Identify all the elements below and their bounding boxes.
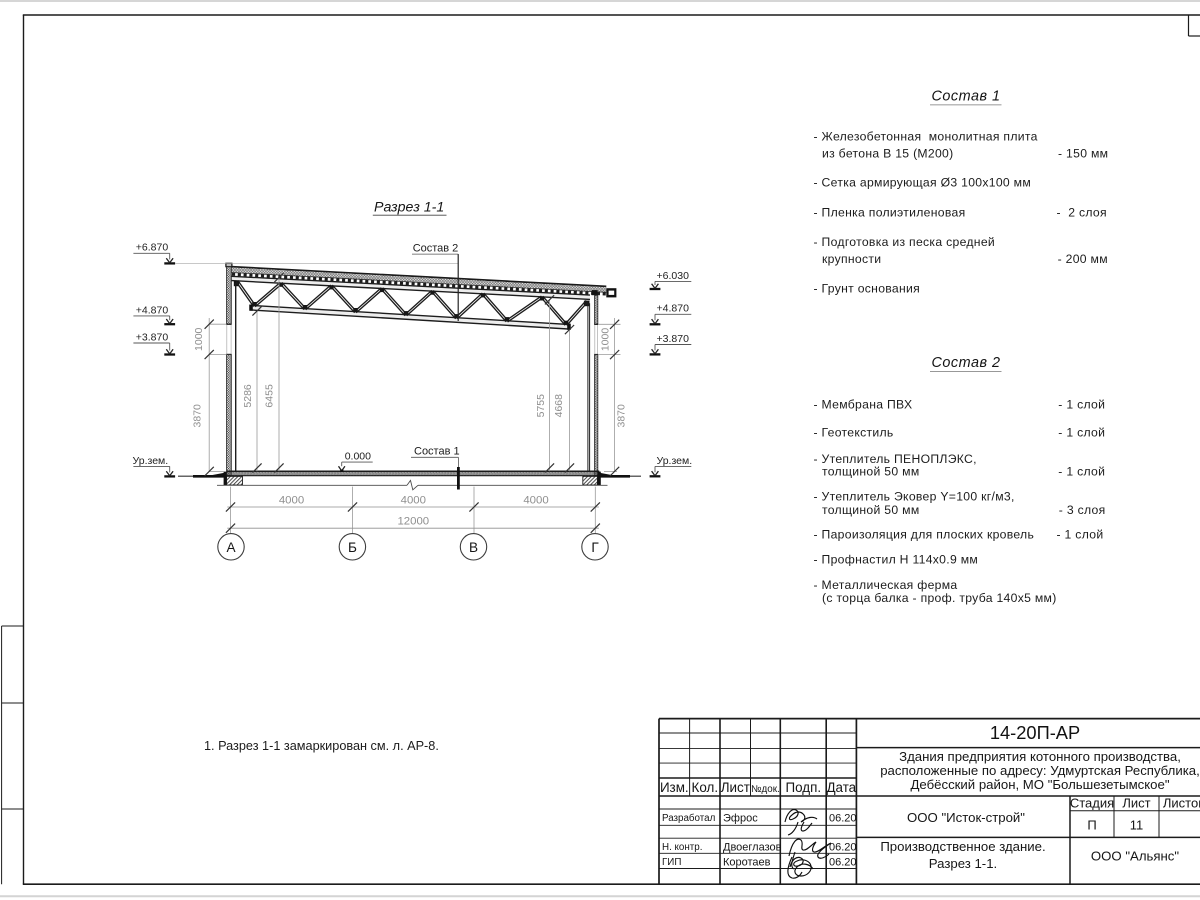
svg-text:5286: 5286 xyxy=(242,384,254,408)
svg-text:расположенные по адресу: Удмур: расположенные по адресу: Удмуртская Респ… xyxy=(880,763,1200,778)
svg-text:- 150 мм: - 150 мм xyxy=(1058,147,1108,161)
svg-text:- Геотекстиль: - Геотекстиль xyxy=(814,426,894,440)
svg-text:Состав 1: Состав 1 xyxy=(414,446,460,458)
svg-text:ООО "Альянс": ООО "Альянс" xyxy=(1091,849,1179,864)
svg-text:4000: 4000 xyxy=(523,494,548,506)
svg-text:толщиной 50 мм: толщиной 50 мм xyxy=(822,503,920,517)
svg-text:+6.030: +6.030 xyxy=(657,270,690,282)
svg-text:Н. контр.: Н. контр. xyxy=(662,842,702,853)
svg-text:4668: 4668 xyxy=(553,394,565,418)
svg-text:- Мембрана ПВХ: - Мембрана ПВХ xyxy=(814,398,913,412)
svg-text:06.20: 06.20 xyxy=(829,813,857,825)
svg-text:- Грунт основания: - Грунт основания xyxy=(814,281,921,295)
svg-text:- Утеплитель Эковер Y=100 кг/м: - Утеплитель Эковер Y=100 кг/м3, xyxy=(814,490,1015,504)
svg-text:ГИП: ГИП xyxy=(662,857,681,868)
svg-text:3870: 3870 xyxy=(192,404,204,428)
svg-text:+3.870: +3.870 xyxy=(136,331,169,343)
svg-text:5755: 5755 xyxy=(535,394,547,418)
svg-text:Коротаев: Коротаев xyxy=(723,857,771,869)
svg-text:Эфрос: Эфрос xyxy=(723,813,758,825)
svg-text:4000: 4000 xyxy=(279,494,304,506)
svg-text:14-20П-АР: 14-20П-АР xyxy=(990,722,1080,743)
svg-text:Изм.: Изм. xyxy=(660,780,689,795)
svg-text:1. Разрез 1-1 замаркирован см.: 1. Разрез 1-1 замаркирован см. л. АР-8. xyxy=(204,739,439,753)
svg-text:4000: 4000 xyxy=(401,494,426,506)
svg-text:Подп.: Подп. xyxy=(786,780,822,795)
svg-text:- 200 мм: - 200 мм xyxy=(1058,252,1108,266)
svg-text:- Сетка армирующая Ø3 100х100: - Сетка армирующая Ø3 100х100 мм xyxy=(814,176,1032,190)
svg-text:11: 11 xyxy=(1130,818,1144,833)
svg-text:+4.870: +4.870 xyxy=(657,303,690,315)
svg-text:1000: 1000 xyxy=(600,328,612,352)
svg-text:+3.870: +3.870 xyxy=(657,333,690,345)
svg-text:Листов: Листов xyxy=(1163,795,1200,810)
svg-text:Дебёсский район, МО "Большезет: Дебёсский район, МО "Большезетымское" xyxy=(910,777,1169,792)
svg-text:А: А xyxy=(226,540,236,555)
svg-text:6455: 6455 xyxy=(263,384,275,408)
svg-text:3870: 3870 xyxy=(616,404,628,428)
svg-text:(с торца балка - проф. труба 1: (с торца балка - проф. труба 140х5 мм) xyxy=(822,591,1057,605)
svg-text:Кол.: Кол. xyxy=(692,780,719,795)
svg-text:крупности: крупности xyxy=(822,252,881,266)
svg-text:Двоеглазов: Двоеглазов xyxy=(723,841,782,853)
svg-text:Разрез 1-1.: Разрез 1-1. xyxy=(929,856,997,871)
svg-text:Лист: Лист xyxy=(1122,795,1150,810)
svg-text:12000: 12000 xyxy=(397,516,429,528)
svg-text:- 1 слой: - 1 слой xyxy=(1058,426,1105,440)
svg-text:Разрез 1-1: Разрез 1-1 xyxy=(374,199,444,215)
svg-text:+4.870: +4.870 xyxy=(136,304,169,316)
svg-text:Лист: Лист xyxy=(721,780,750,795)
svg-text:06.20: 06.20 xyxy=(829,857,857,869)
svg-text:+6.870: +6.870 xyxy=(136,242,169,254)
svg-text:- 2 слоя: - 2 слоя xyxy=(1057,205,1107,219)
svg-text:- Подготовка из песка средней: - Подготовка из песка средней xyxy=(814,235,996,249)
svg-text:- Железобетонная монолитная п: - Железобетонная монолитная плита xyxy=(814,130,1038,144)
svg-text:ООО "Исток-строй": ООО "Исток-строй" xyxy=(907,810,1025,825)
svg-text:06.20: 06.20 xyxy=(829,841,857,853)
svg-text:- 1 слой: - 1 слой xyxy=(1057,527,1104,541)
svg-text:Состав 2: Состав 2 xyxy=(932,355,1001,371)
svg-text:В: В xyxy=(469,540,478,555)
svg-text:Дата: Дата xyxy=(826,780,856,795)
svg-text:Стадия: Стадия xyxy=(1070,795,1114,810)
svg-text:- 1 слой: - 1 слой xyxy=(1058,464,1105,478)
svg-text:Состав 1: Состав 1 xyxy=(932,89,1001,105)
svg-text:0.000: 0.000 xyxy=(345,450,371,462)
svg-text:- Пленка полиэтиленовая: - Пленка полиэтиленовая xyxy=(814,205,966,219)
svg-text:П: П xyxy=(1087,818,1096,833)
svg-text:толщиной 50 мм: толщиной 50 мм xyxy=(822,464,920,478)
svg-text:№док.: №док. xyxy=(751,784,780,795)
svg-text:Состав 2: Состав 2 xyxy=(413,242,459,254)
svg-text:Здания предприятия котонного п: Здания предприятия котонного производств… xyxy=(899,749,1181,764)
svg-text:из бетона В 15 (М200): из бетона В 15 (М200) xyxy=(822,147,953,161)
svg-text:Б: Б xyxy=(348,540,357,555)
svg-text:Производственное здание.: Производственное здание. xyxy=(880,839,1045,854)
svg-text:- 1 слой: - 1 слой xyxy=(1058,398,1105,412)
svg-text:- 3 слоя: - 3 слоя xyxy=(1059,503,1106,517)
svg-text:- Пароизоляция для плоских кро: - Пароизоляция для плоских кровель xyxy=(814,527,1035,541)
svg-text:Г: Г xyxy=(591,540,599,555)
svg-text:Разработал: Разработал xyxy=(662,813,716,824)
svg-text:- Профнастил Н 114х0.9 мм: - Профнастил Н 114х0.9 мм xyxy=(814,553,979,567)
svg-text:Ур.зем.: Ур.зем. xyxy=(657,455,693,467)
svg-text:Ур.зем.: Ур.зем. xyxy=(133,455,169,467)
svg-text:1000: 1000 xyxy=(193,327,205,351)
